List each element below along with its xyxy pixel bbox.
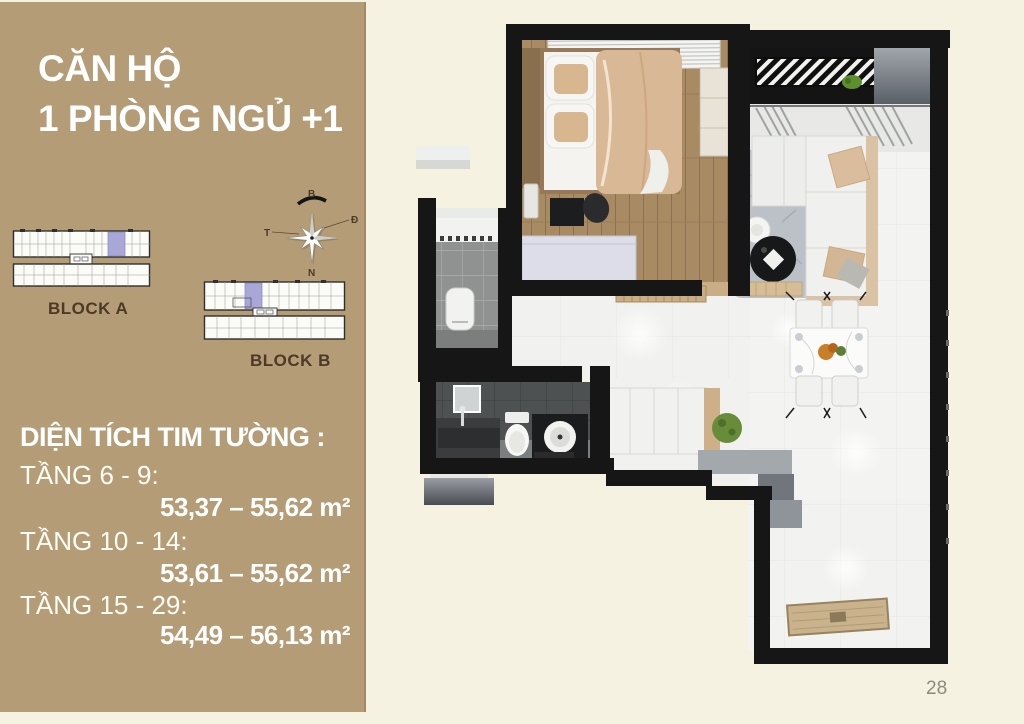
bed <box>540 48 682 194</box>
basin <box>544 421 576 453</box>
bathroom-counter <box>438 428 500 448</box>
bathroom-mirror <box>454 386 480 412</box>
bathroom <box>424 382 590 505</box>
block-b-core <box>253 308 277 316</box>
dining-chair <box>832 300 858 330</box>
kitchen-bottom-wall <box>606 470 712 486</box>
bedroom-dresser <box>522 236 636 282</box>
dining-chair <box>796 376 822 406</box>
wardrobe <box>700 68 728 156</box>
entrance-corridor <box>787 599 889 636</box>
block-b-lower-wing <box>205 316 345 339</box>
bedroom-right-wall <box>728 24 750 296</box>
floor-range-label: TẦNG 6 - 9: <box>20 460 159 491</box>
area-section-heading: DIỆN TÍCH TIM TƯỜNG : <box>20 422 325 453</box>
block-b-keyplan <box>203 278 347 342</box>
ledge-plant <box>842 75 862 89</box>
block-a-highlighted-unit <box>108 232 125 256</box>
page-title-line2: 1 PHÒNG NGỦ +1 <box>38 94 353 144</box>
compass-label-east: Đ <box>351 215 358 226</box>
apartment-floor-plan <box>380 0 1024 724</box>
dining-chair <box>832 376 858 406</box>
kitchen-cabinets <box>606 388 720 458</box>
compass-label-south: N <box>308 268 315 278</box>
floor-range-area: 53,37 – 55,62 m² <box>160 492 350 523</box>
page-title: CĂN HỘ 1 PHÒNG NGỦ +1 <box>38 44 353 144</box>
compass-star <box>286 212 340 266</box>
block-b-label: BLOCK B <box>250 351 331 371</box>
bathroom-bottom-wall <box>424 458 614 474</box>
doormat <box>787 599 889 636</box>
north-outer-wall <box>750 30 950 48</box>
floor-range-label: TẦNG 15 - 29: <box>20 590 188 621</box>
block-b-highlighted-unit <box>245 283 262 309</box>
bathroom-right-wall <box>590 366 610 474</box>
wall-switch-panel <box>524 184 538 218</box>
tv <box>550 198 584 226</box>
block-a-lower-wing <box>14 264 151 286</box>
compass-label-west: T <box>264 228 270 239</box>
sidebar-panel: CĂN HỘ 1 PHÒNG NGỦ +1 <box>0 2 366 712</box>
moss-ball-plant <box>712 413 742 443</box>
block-b-upper-wing <box>205 280 345 310</box>
south-outer-wall <box>756 648 948 664</box>
sofa-frame <box>866 136 878 304</box>
step-wall <box>706 486 772 500</box>
block-a-core <box>70 254 92 264</box>
floor-range-area: 54,49 – 56,13 m² <box>160 620 350 651</box>
floor-range-label: TẦNG 10 - 14: <box>20 526 188 557</box>
bathroom-outer-face <box>424 478 494 505</box>
faucet <box>460 406 466 412</box>
east-outer-wall <box>930 30 948 664</box>
dining-chair <box>796 300 822 330</box>
block-a-label: BLOCK A <box>48 299 128 319</box>
shower-divider-wall <box>418 348 512 368</box>
page: CĂN HỘ 1 PHÒNG NGỦ +1 <box>0 0 1024 724</box>
page-title-line1: CĂN HỘ <box>38 44 353 94</box>
compass-label-north: B <box>308 189 315 200</box>
bedroom-bottom-wall <box>506 280 702 296</box>
dining-table <box>790 328 868 378</box>
toilet <box>505 412 529 456</box>
corridor-wall <box>754 498 770 664</box>
water-heater <box>446 288 474 330</box>
bedroom-top-wall <box>506 24 750 40</box>
floor-range-area: 53,61 – 55,62 m² <box>160 558 350 589</box>
compass-rose-icon: B Đ T N <box>262 186 362 278</box>
exterior-ledge <box>416 146 470 160</box>
block-a-upper-wing <box>14 229 151 257</box>
duvet <box>596 50 682 194</box>
page-number: 28 <box>926 678 947 700</box>
wall-console <box>748 282 802 296</box>
block-a-keyplan <box>12 228 152 290</box>
bathroom-left-wall <box>420 366 436 474</box>
coffee-table <box>750 236 796 282</box>
